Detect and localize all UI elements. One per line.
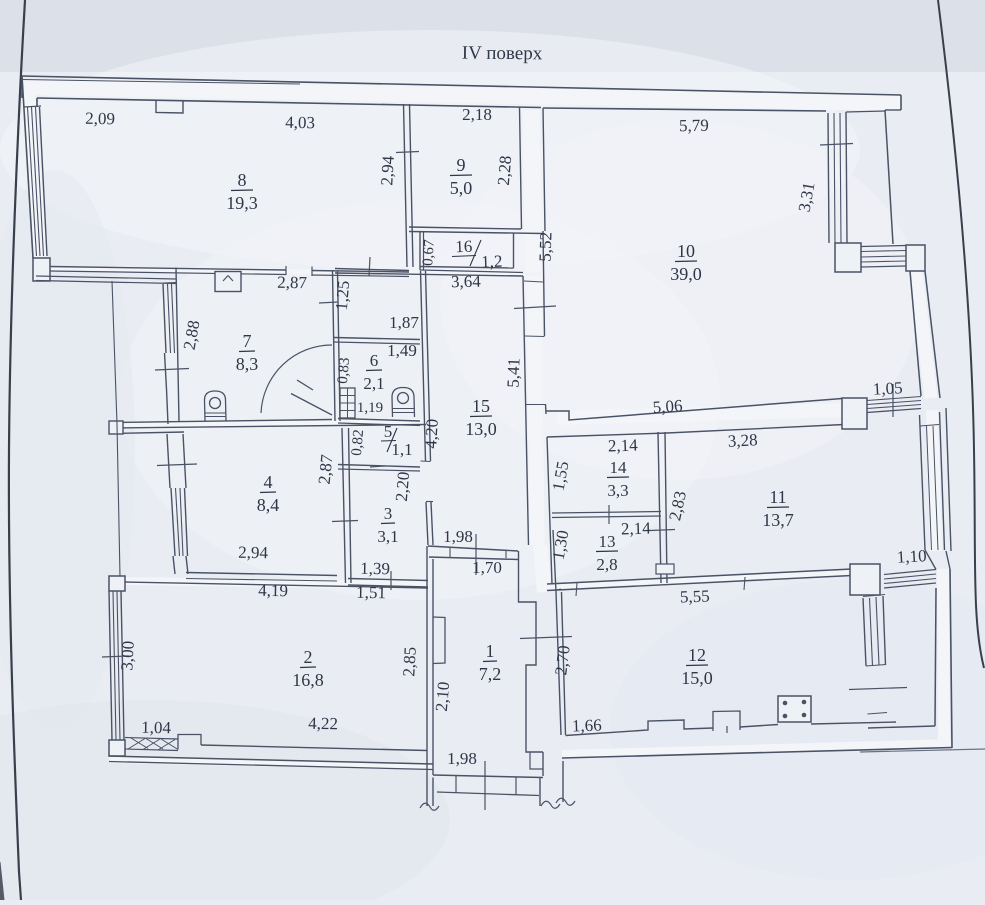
svg-text:1,04: 1,04 xyxy=(141,718,172,738)
svg-text:1,19: 1,19 xyxy=(357,400,383,416)
svg-text:12: 12 xyxy=(688,645,706,665)
svg-text:4: 4 xyxy=(264,472,273,492)
svg-text:2,18: 2,18 xyxy=(462,105,492,124)
svg-text:6: 6 xyxy=(370,351,379,370)
svg-text:2,85: 2,85 xyxy=(399,646,420,677)
svg-text:2: 2 xyxy=(304,647,313,667)
svg-text:2,87: 2,87 xyxy=(315,453,337,485)
svg-text:5,41: 5,41 xyxy=(503,358,523,388)
svg-text:4,22: 4,22 xyxy=(308,714,338,734)
svg-text:1,98: 1,98 xyxy=(443,527,473,546)
svg-text:5,06: 5,06 xyxy=(652,396,683,417)
svg-text:0,82: 0,82 xyxy=(349,429,367,457)
svg-text:1,25: 1,25 xyxy=(332,280,354,311)
svg-text:1,87: 1,87 xyxy=(389,313,419,332)
svg-text:14: 14 xyxy=(610,458,628,477)
svg-text:7: 7 xyxy=(243,331,252,351)
svg-text:1,70: 1,70 xyxy=(472,558,502,577)
svg-text:0,67: 0,67 xyxy=(420,239,438,267)
svg-text:2,70: 2,70 xyxy=(551,644,573,676)
svg-text:15: 15 xyxy=(472,396,490,416)
svg-text:5: 5 xyxy=(384,422,393,441)
svg-text:1,2: 1,2 xyxy=(481,252,503,272)
svg-text:5,79: 5,79 xyxy=(679,116,709,136)
svg-text:1,66: 1,66 xyxy=(572,715,602,735)
svg-text:8,3: 8,3 xyxy=(236,354,259,374)
svg-text:2,87: 2,87 xyxy=(277,273,308,293)
svg-text:4,03: 4,03 xyxy=(285,113,315,133)
svg-text:2,14: 2,14 xyxy=(621,518,652,538)
svg-text:8: 8 xyxy=(238,170,247,190)
svg-text:2,8: 2,8 xyxy=(596,555,617,574)
svg-text:15,0: 15,0 xyxy=(681,668,713,688)
svg-text:11: 11 xyxy=(769,487,786,507)
svg-text:13,0: 13,0 xyxy=(465,419,497,439)
svg-text:10: 10 xyxy=(677,241,695,261)
svg-text:1,98: 1,98 xyxy=(447,749,477,768)
svg-text:13,7: 13,7 xyxy=(762,510,794,530)
svg-text:1,51: 1,51 xyxy=(356,583,386,603)
svg-text:2,28: 2,28 xyxy=(494,155,516,186)
svg-text:3,3: 3,3 xyxy=(607,481,628,500)
svg-text:39,0: 39,0 xyxy=(670,264,702,284)
svg-text:1,49: 1,49 xyxy=(387,341,417,360)
svg-text:5,0: 5,0 xyxy=(450,178,473,198)
svg-text:3,64: 3,64 xyxy=(451,272,482,292)
svg-text:1,05: 1,05 xyxy=(872,378,903,399)
svg-text:4,20: 4,20 xyxy=(421,418,442,449)
svg-text:16: 16 xyxy=(455,237,473,257)
svg-text:2,1: 2,1 xyxy=(363,374,384,393)
svg-text:0,83: 0,83 xyxy=(335,357,353,385)
svg-text:8,4: 8,4 xyxy=(257,495,280,515)
svg-text:3,1: 3,1 xyxy=(377,527,398,546)
svg-text:2,20: 2,20 xyxy=(392,471,414,502)
svg-text:2,94: 2,94 xyxy=(377,155,398,186)
svg-text:13: 13 xyxy=(599,532,616,551)
svg-text:19,3: 19,3 xyxy=(226,193,258,213)
svg-text:2,10: 2,10 xyxy=(432,681,454,712)
svg-text:3: 3 xyxy=(384,504,393,523)
svg-text:16,8: 16,8 xyxy=(292,670,324,690)
svg-text:1: 1 xyxy=(486,641,495,661)
svg-text:3,28: 3,28 xyxy=(727,430,758,451)
svg-text:1,1: 1,1 xyxy=(391,440,412,459)
svg-text:2,14: 2,14 xyxy=(608,435,639,455)
svg-text:7,2: 7,2 xyxy=(479,664,502,684)
svg-text:1,10: 1,10 xyxy=(896,546,927,567)
svg-text:5,52: 5,52 xyxy=(535,232,555,262)
svg-text:3,00: 3,00 xyxy=(117,640,138,671)
svg-text:IV поверх: IV поверх xyxy=(462,43,543,65)
svg-text:5,55: 5,55 xyxy=(680,586,710,606)
svg-text:9: 9 xyxy=(457,155,466,175)
svg-text:2,09: 2,09 xyxy=(85,109,115,129)
svg-text:4,19: 4,19 xyxy=(258,581,288,601)
svg-text:1,39: 1,39 xyxy=(360,559,390,579)
svg-text:2,94: 2,94 xyxy=(238,543,269,563)
